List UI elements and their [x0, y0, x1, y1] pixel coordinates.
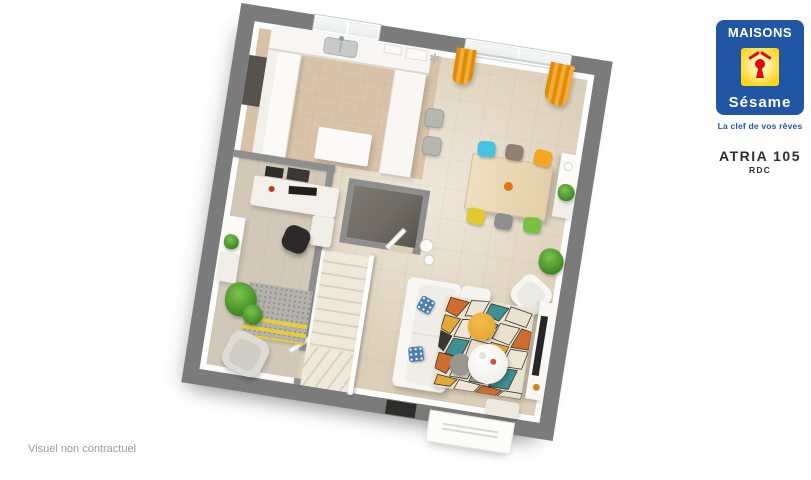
bar-stool: [423, 107, 445, 129]
brand-name-top: MAISONS: [728, 26, 792, 39]
table-deco: [490, 358, 497, 365]
table-deco: [479, 352, 487, 360]
brand-tagline: La clef de vos rêves: [711, 121, 809, 131]
plan-title: ATRIA 105: [711, 148, 809, 164]
plan-interior: ✻: [200, 21, 595, 422]
wc-room: [339, 178, 430, 255]
brand-panel: MAISONS Sésame La clef de vos rêves ATRI…: [711, 20, 809, 175]
wall-ornament-icon: ✻: [428, 51, 441, 66]
dining-chair-gray: [493, 212, 513, 231]
floor-plan-3d: ✻: [181, 3, 612, 441]
floor-label: RDC: [711, 165, 809, 175]
brand-name-bottom: Sésame: [729, 95, 792, 110]
dining-chair-cyan: [477, 141, 496, 158]
front-door: [385, 400, 417, 419]
brand-logo: MAISONS Sésame: [716, 20, 804, 115]
desk-return: [308, 215, 334, 248]
bar-stool: [421, 135, 443, 157]
dining-chair-taupe: [504, 143, 524, 162]
staircase-winder-steps: [300, 345, 354, 392]
window-pane-divider: [346, 22, 350, 34]
keyhole-house-icon: [741, 48, 779, 86]
roof-icon: [760, 51, 772, 59]
disclaimer-text: Visuel non contractuel: [28, 443, 136, 455]
dining-chair-green: [523, 217, 542, 234]
sofa-pillow: [408, 346, 424, 362]
